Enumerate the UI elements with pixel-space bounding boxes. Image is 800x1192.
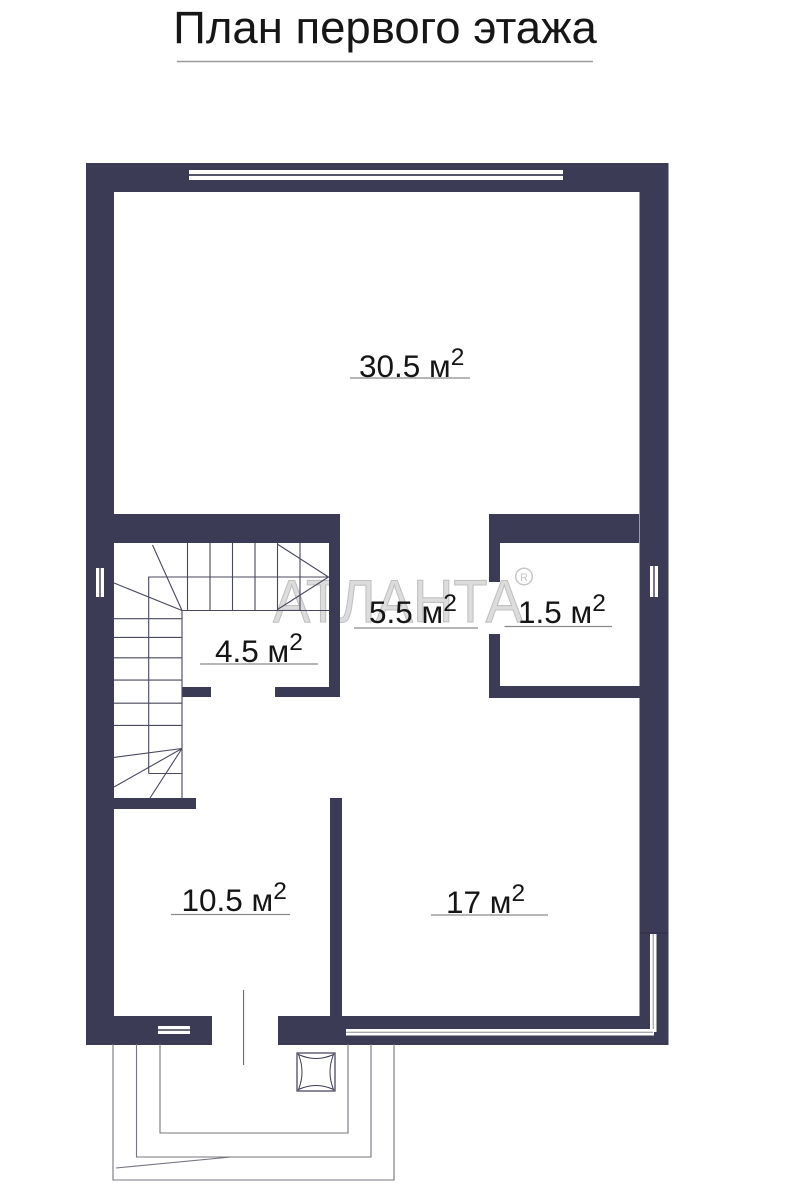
svg-text:План первого этажа: План первого этажа <box>173 2 597 53</box>
svg-text:10.5 м2: 10.5 м2 <box>182 878 287 918</box>
svg-text:R: R <box>520 572 528 584</box>
svg-text:1.5 м2: 1.5 м2 <box>518 590 606 630</box>
svg-text:17 м2: 17 м2 <box>446 880 525 920</box>
svg-text:4.5 м2: 4.5 м2 <box>215 629 303 669</box>
